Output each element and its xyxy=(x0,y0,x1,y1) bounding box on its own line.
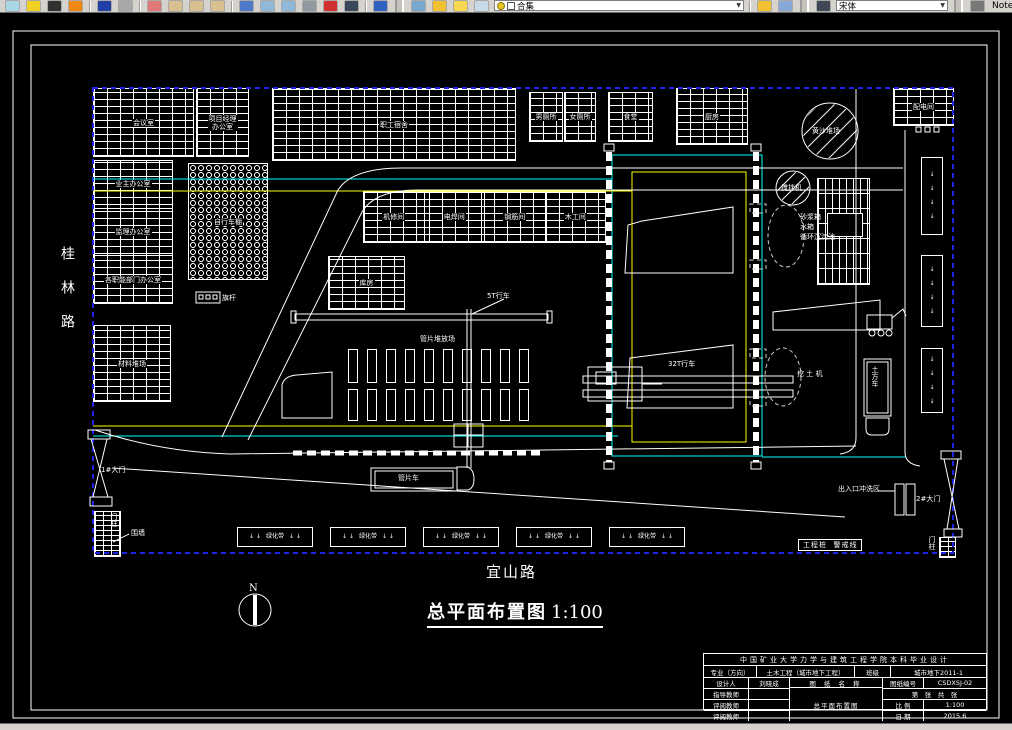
grass-arrows: ↓ ↓ xyxy=(249,534,261,540)
segment-stack-r1-c8 xyxy=(500,389,510,421)
help-icon[interactable] xyxy=(374,1,387,11)
grass-arrows: ↓ ↓ xyxy=(382,534,394,540)
pan-realtime-icon[interactable] xyxy=(148,1,161,11)
grass-arrows: ↓ ↓ xyxy=(568,534,580,540)
scale-value: 1:100 xyxy=(924,700,986,710)
building-workshops-cell-0: 机修间 xyxy=(364,192,424,242)
building-kitchen: 厨房 xyxy=(676,88,748,145)
building-staff-dormitory: 职工宿舍 xyxy=(272,88,516,161)
building-offices-block-cell-1: 监理办公室 xyxy=(94,208,172,256)
cad-window: 合集▼宋体▼Note 会议室项目经理 办公室职工宿舍男厕所女厕所食堂厨房配电间业… xyxy=(0,0,1012,729)
toolbar: 合集▼宋体▼Note xyxy=(0,0,1012,13)
green-belt-label: 绿化带 xyxy=(359,534,377,540)
green-belt-right-0: ↓↓↓↓ xyxy=(921,157,943,235)
segment-stack-r0-c9 xyxy=(519,349,529,383)
green-belt-bottom-4: ↓ ↓绿化带↓ ↓ xyxy=(609,527,685,547)
green-belt-label: 绿化带 xyxy=(266,534,284,540)
building-offices-block: 业主办公室监理办公室各职能部门办公室 xyxy=(93,160,173,304)
grass-arrows: ↓ xyxy=(929,371,934,377)
date-label: 日 期 xyxy=(883,711,924,721)
building-project-manager-office: 项目经理 办公室 xyxy=(196,88,249,157)
number-label: 图纸编号 xyxy=(883,678,924,688)
grass-arrows: ↓ xyxy=(929,357,934,363)
building-meeting-room: 会议室 xyxy=(93,88,194,157)
grass-arrows: ↓ xyxy=(929,385,934,391)
font-combo[interactable]: 宋体▼ xyxy=(836,0,948,11)
building-workshops-label-1: 电焊间 xyxy=(443,213,466,221)
layer-combo[interactable]: 合集▼ xyxy=(494,0,744,11)
gate-1-pillar-brick xyxy=(94,511,121,557)
segment-stack-r0-c6 xyxy=(462,349,472,383)
grass-arrows: ↓ xyxy=(929,267,934,273)
building-material-yard: 材料堆场 xyxy=(93,325,171,402)
layer-states-icon[interactable] xyxy=(779,1,792,11)
segment-stack-r0-c7 xyxy=(481,349,491,383)
role-value-2 xyxy=(749,699,789,710)
drawing-title-text: 总平面布置图 xyxy=(427,598,547,624)
segment-stack-r1-c0 xyxy=(348,389,358,421)
building-workshops-label-2: 钢筋间 xyxy=(503,213,526,221)
zoom-realtime-icon[interactable] xyxy=(169,1,182,11)
major-label: 专业（方向） xyxy=(704,666,756,677)
class-value: 城市地下2011-1 xyxy=(890,666,986,677)
major-value: 土木工程（城市地下工程） xyxy=(756,666,854,677)
grass-arrows: ↓ ↓ xyxy=(435,534,447,540)
grass-arrows: ↓ xyxy=(929,172,934,178)
building-workshops-cell-1: 电焊间 xyxy=(424,192,485,242)
grass-arrows: ↓ ↓ xyxy=(621,534,633,540)
bottom-road-label: 宜山路 xyxy=(486,561,537,582)
role-label-0: 设计人 xyxy=(704,678,748,688)
text-scale-icon[interactable] xyxy=(240,1,253,11)
building-power-distribution-room-label: 配电间 xyxy=(912,103,935,111)
grid-icon[interactable] xyxy=(345,1,358,11)
toolbar-sep xyxy=(365,1,367,12)
segment-stack-r1-c5 xyxy=(443,389,453,421)
title-block-role-labels: 设计人指导教师评阅教师评阅教师 xyxy=(704,678,748,721)
layer-combo-dropdown-icon[interactable]: ▼ xyxy=(736,2,741,9)
grass-arrows: ↓ xyxy=(929,200,934,206)
segment-stack-r1-c1 xyxy=(367,389,377,421)
green-belt-label: 绿化带 xyxy=(638,534,656,540)
segment-stack-r0-c2 xyxy=(386,349,396,383)
building-male-toilet-label: 男厕所 xyxy=(535,113,558,121)
building-female-toilet: 女厕所 xyxy=(564,92,596,142)
sun-icon[interactable] xyxy=(454,1,467,11)
building-workshops-label-0: 机修间 xyxy=(382,213,405,221)
toolbar-sep xyxy=(749,1,751,12)
north-label: N xyxy=(249,583,258,594)
grass-arrows: ↓ xyxy=(929,281,934,287)
role-value-0: 刘晓成 xyxy=(749,678,789,688)
table-icon[interactable] xyxy=(261,1,274,11)
building-meeting-room-label: 会议室 xyxy=(132,119,155,127)
drawing-name-value: 总平面布置图 xyxy=(790,687,882,721)
green-belt-label: 绿化带 xyxy=(545,534,563,540)
scale-label: 比 例 xyxy=(883,700,924,710)
building-staff-dormitory-label: 职工宿舍 xyxy=(379,121,409,129)
building-power-distribution-room: 配电间 xyxy=(893,88,954,126)
toolbar-sep xyxy=(231,1,233,12)
sheet-count: 第 张 共 张 xyxy=(883,689,986,699)
gate-2-pillar-brick xyxy=(939,537,956,558)
building-female-toilet-label: 女厕所 xyxy=(569,113,592,121)
zoom-previous-icon[interactable] xyxy=(211,1,224,11)
font-combo-value: 宋体 xyxy=(839,0,856,12)
segment-stack-r0-c5 xyxy=(443,349,453,383)
arrow-down-icon[interactable] xyxy=(98,1,111,11)
grass-arrows: ↓ xyxy=(929,309,934,315)
plot-icon[interactable] xyxy=(303,1,316,11)
grass-arrows: ↓ ↓ xyxy=(528,534,540,540)
building-kitchen-label: 厨房 xyxy=(704,113,720,121)
grass-arrows: ↓ xyxy=(929,399,934,405)
segment-stack-r1-c7 xyxy=(481,389,491,421)
segment-stack-r0-c4 xyxy=(424,349,434,383)
building-offices-block-cell-0: 业主办公室 xyxy=(94,161,172,208)
date-value: 2015.6 xyxy=(924,711,986,721)
green-belt-right-2: ↓↓↓↓ xyxy=(921,348,943,413)
building-canteen-label: 食堂 xyxy=(623,113,639,121)
grass-arrows: ↓ ↓ xyxy=(475,534,487,540)
building-workshops-cell-2: 钢筋间 xyxy=(484,192,545,242)
green-belt-bottom-2: ↓ ↓绿化带↓ ↓ xyxy=(423,527,499,547)
grass-arrows: ↓ xyxy=(929,214,934,220)
title-block: 中国矿业大学力学与建筑工程学院本科毕业设计 专业（方向） 土木工程（城市地下工程… xyxy=(703,653,987,710)
building-offices-block-label-1: 监理办公室 xyxy=(115,228,152,236)
drawing-name-label: 图 纸 名 称 xyxy=(790,678,882,687)
sheet-set-icon[interactable] xyxy=(282,1,295,11)
drawing-title: 总平面布置图 1:100 xyxy=(427,598,603,628)
building-male-toilet: 男厕所 xyxy=(529,92,563,142)
title-block-school: 中国矿业大学力学与建筑工程学院本科毕业设计 xyxy=(704,654,986,665)
role-label-1: 指导教师 xyxy=(704,688,748,699)
segment-stack-r0-c3 xyxy=(405,349,415,383)
role-label-3: 评阅教师 xyxy=(704,710,748,721)
font-combo-dropdown-icon[interactable]: ▼ xyxy=(940,2,945,9)
segment-stack-r1-c9 xyxy=(519,389,529,421)
number-value: CSDXSJ-02 xyxy=(924,678,986,688)
grass-arrows: ↓ ↓ xyxy=(661,534,673,540)
segment-stack-r0-c1 xyxy=(367,349,377,383)
grass-arrows: ↓ ↓ xyxy=(342,534,354,540)
role-value-1 xyxy=(749,688,789,699)
building-storehouse: 库房 xyxy=(328,256,405,310)
building-canteen: 食堂 xyxy=(608,92,653,142)
class-label: 班级 xyxy=(854,666,890,677)
building-material-yard-label: 材料堆场 xyxy=(117,360,147,368)
building-offices-block-label-0: 业主办公室 xyxy=(115,180,152,188)
toolbar-bigsep xyxy=(395,0,404,12)
render-icon[interactable] xyxy=(324,1,337,11)
building-storehouse-label: 库房 xyxy=(359,279,375,287)
toolbar-sep xyxy=(89,1,91,12)
drawing-scale-text: 1:100 xyxy=(551,602,603,623)
green-belt-bottom-1: ↓ ↓绿化带↓ ↓ xyxy=(330,527,406,547)
segment-stack-r1-c4 xyxy=(424,389,434,421)
dim-style-icon[interactable] xyxy=(971,1,984,11)
note-label: Note xyxy=(992,1,1012,11)
segment-stack-r1-c2 xyxy=(386,389,396,421)
freeze-layer-icon[interactable] xyxy=(475,1,488,11)
toolbar-sep xyxy=(139,1,141,12)
building-workshops-cell-3: 木工间 xyxy=(545,192,606,242)
green-belt-bottom-0: ↓ ↓绿化带↓ ↓ xyxy=(237,527,313,547)
segment-stack-r1-c3 xyxy=(405,389,415,421)
toolbar-bigsep xyxy=(800,0,809,12)
pencil-icon[interactable] xyxy=(48,1,61,11)
building-workshops-label-3: 木工间 xyxy=(564,213,587,221)
bulb-icon[interactable] xyxy=(433,1,446,11)
green-belt-bottom-3: ↓ ↓绿化带↓ ↓ xyxy=(516,527,592,547)
edit-polyline-icon[interactable] xyxy=(69,1,82,11)
match-properties-icon[interactable] xyxy=(27,1,40,11)
toolbar-bigsep xyxy=(954,0,963,12)
make-current-layer-icon[interactable] xyxy=(758,1,771,11)
building-workshops: 机修间电焊间钢筋间木工间 xyxy=(363,191,606,243)
green-belt-right-1: ↓↓↓↓ xyxy=(921,255,943,327)
role-value-3 xyxy=(749,710,789,721)
building-offices-block-cell-2: 各职能部门办公室 xyxy=(94,255,172,303)
grass-arrows: ↓ xyxy=(929,186,934,192)
segment-stack-r0-c0 xyxy=(348,349,358,383)
arrow-down-disabled-icon[interactable] xyxy=(119,1,132,11)
text-style-icon[interactable] xyxy=(817,1,830,11)
title-block-role-values: 刘晓成 xyxy=(748,678,789,721)
segment-stack-r1-c6 xyxy=(462,389,472,421)
grass-arrows: ↓ ↓ xyxy=(289,534,301,540)
building-mortar-station-inner xyxy=(827,213,863,237)
role-label-2: 评阅教师 xyxy=(704,699,748,710)
left-road-label: 桂林路 xyxy=(57,246,77,348)
segment-stack-r0-c8 xyxy=(500,349,510,383)
layer-combo-value: 合集 xyxy=(517,0,534,12)
green-belt-label: 绿化带 xyxy=(452,534,470,540)
building-project-manager-office-label: 项目经理 办公室 xyxy=(208,115,238,131)
grass-arrows: ↓ xyxy=(929,295,934,301)
layers-icon[interactable] xyxy=(412,1,425,11)
building-offices-block-label-2: 各职能部门办公室 xyxy=(104,276,162,284)
properties-icon[interactable] xyxy=(6,1,19,11)
zoom-window-icon[interactable] xyxy=(190,1,203,11)
building-bicycle-shed-label: 自行车棚 xyxy=(213,218,243,226)
building-bicycle-shed: 自行车棚 xyxy=(188,163,268,280)
